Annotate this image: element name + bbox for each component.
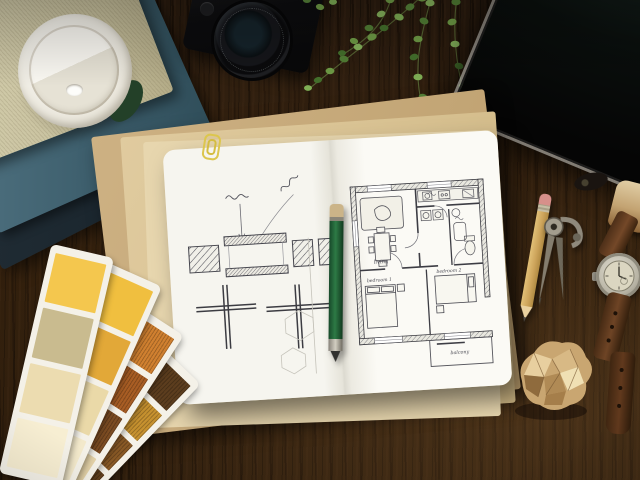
living-room-furniture: [360, 196, 406, 267]
divider-compass: [529, 209, 598, 318]
pencil-tip: [518, 316, 531, 323]
kitchen-fixtures: [417, 187, 478, 202]
watch-face: [596, 253, 640, 299]
label-balcony: balcony: [450, 349, 469, 356]
leather-loop: [573, 170, 610, 194]
label-living: living: [374, 259, 390, 266]
plant-leaves: [303, 0, 470, 107]
label-bedroom1: bedroom 1: [367, 277, 392, 285]
label-bedroom2: bedroom 2: [436, 267, 461, 275]
green-clutch-pencil: [328, 204, 343, 362]
watch-strap-end: [605, 351, 636, 435]
bathroom-fixtures: [421, 208, 476, 258]
camera-knob: [200, 2, 214, 16]
pencil-tip: [328, 351, 342, 362]
crumpled-paper-ball: [504, 329, 598, 423]
coffee-cup-sip-hole: [66, 84, 83, 96]
detail-sketch: [184, 172, 340, 381]
coffee-cup-lid: [29, 25, 119, 115]
pencil-cap: [330, 204, 344, 217]
desk-scene: living bedroom 1 bedroom 2 balcony: [0, 0, 640, 480]
floor-plan: living bedroom 1 bedroom 2 balcony: [350, 179, 494, 371]
